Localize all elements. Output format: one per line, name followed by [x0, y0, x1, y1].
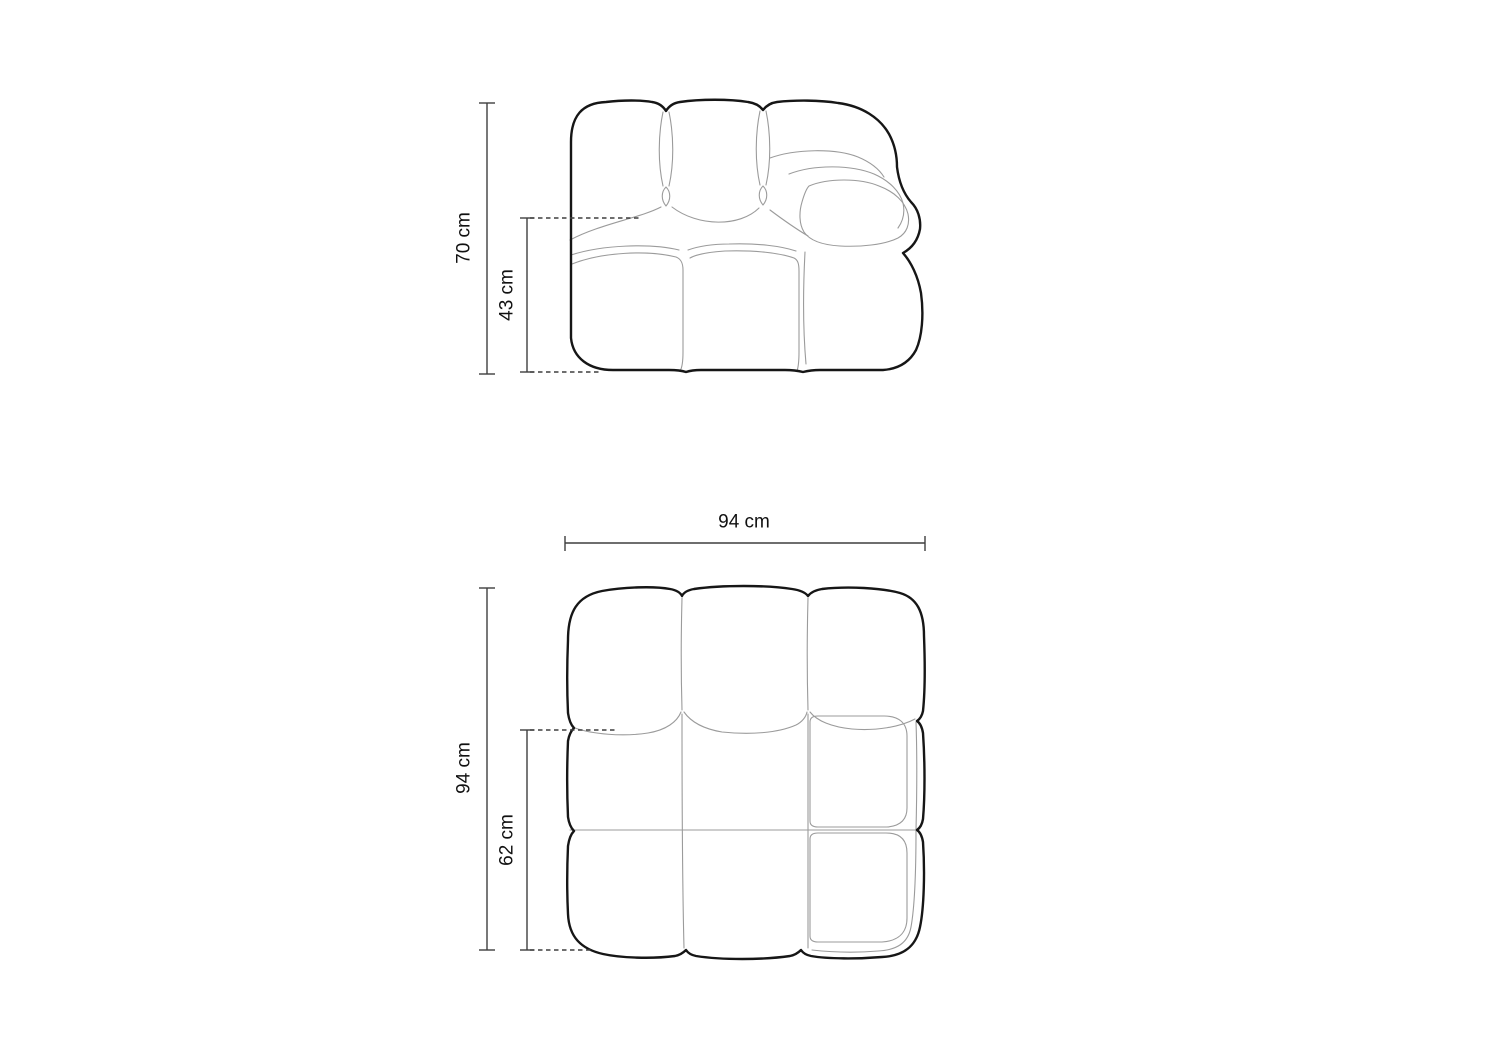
top-seat-depth-label: 62 cm [498, 814, 517, 866]
front-view [479, 100, 922, 374]
front-view-dimension-lines [479, 103, 534, 374]
top-overall-depth-label: 94 cm [455, 742, 474, 794]
top-view-outline [567, 586, 924, 959]
top-view [479, 536, 925, 959]
front-overall-height-label: 70 cm [455, 212, 474, 264]
front-view-tufting-lines [570, 111, 909, 371]
top-view-extension-dashes [530, 730, 616, 950]
top-view-dimension-lines [479, 536, 925, 950]
front-seat-height-label: 43 cm [498, 269, 517, 321]
front-view-outline [571, 100, 922, 372]
sofa-dimensions-diagram: 70 cm 43 cm 94 cm 94 cm 62 cm [0, 0, 1500, 1060]
front-view-extension-dashes [530, 218, 642, 372]
top-overall-width-label: 94 cm [718, 513, 770, 532]
top-view-tufting-lines [570, 598, 917, 952]
